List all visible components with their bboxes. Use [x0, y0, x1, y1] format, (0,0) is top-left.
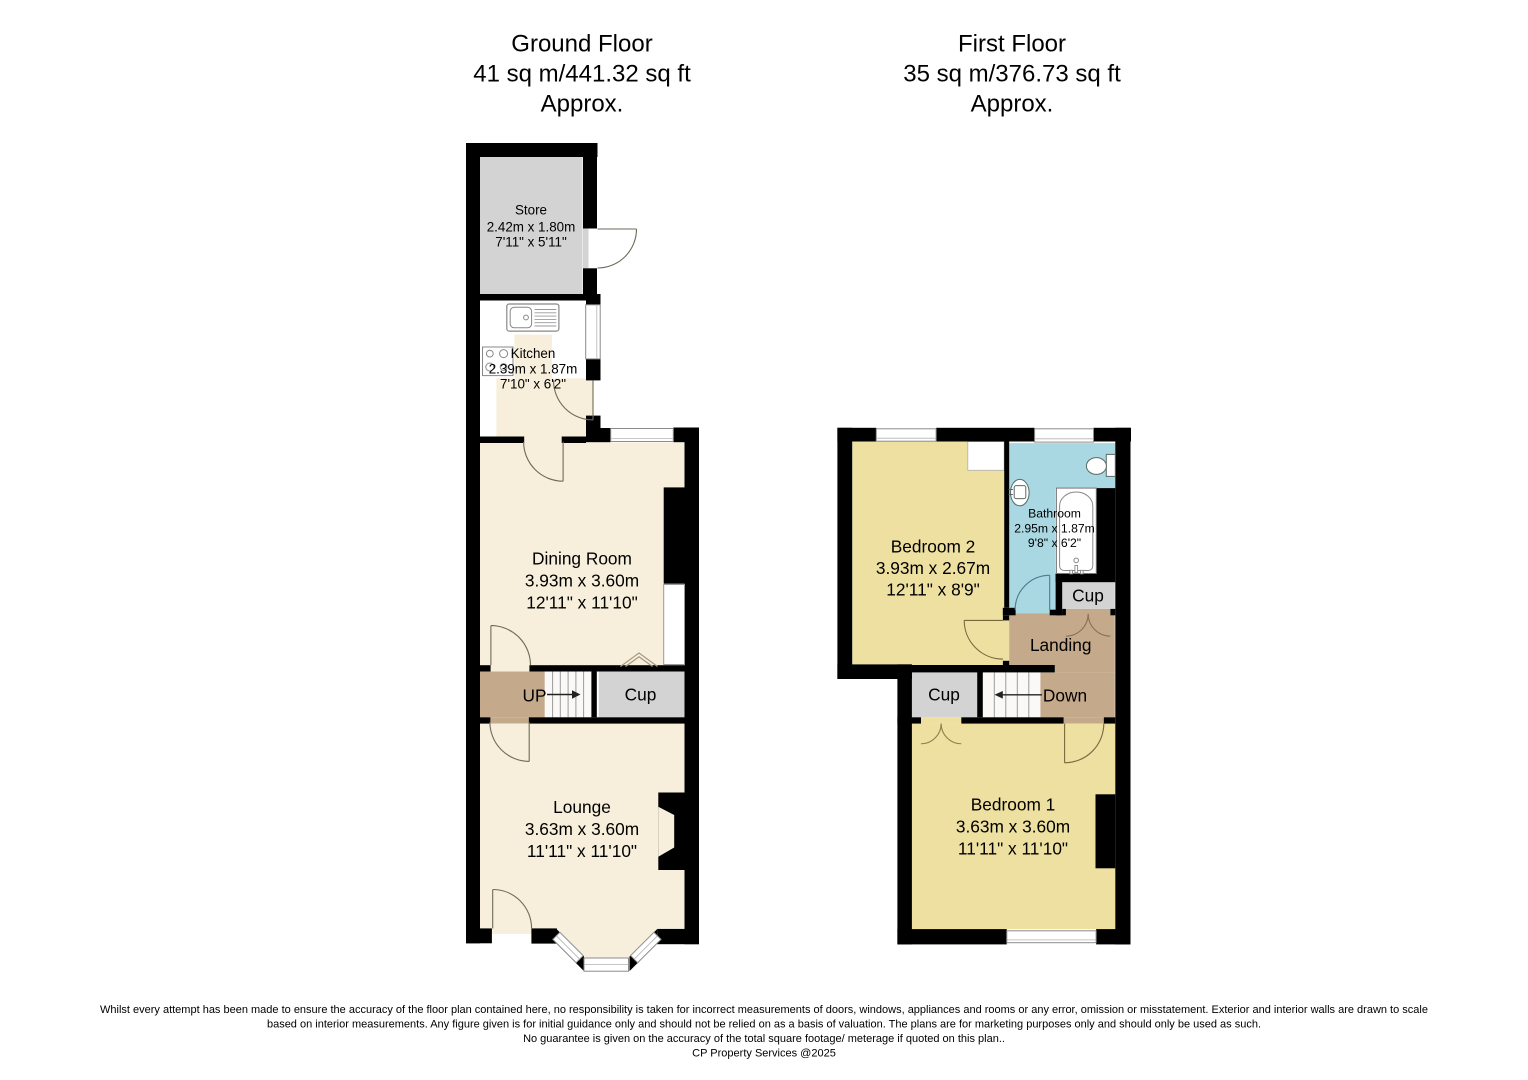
svg-text:Bedroom 2: Bedroom 2 [891, 537, 976, 557]
svg-text:Down: Down [1043, 686, 1087, 706]
svg-text:Cup: Cup [625, 684, 657, 704]
svg-text:12'11" x 8'9": 12'11" x 8'9" [886, 580, 980, 600]
svg-text:7'10" x 6'2": 7'10" x 6'2" [500, 377, 566, 392]
svg-text:Ground Floor: Ground Floor [511, 31, 652, 58]
svg-text:Approx.: Approx. [541, 91, 624, 118]
svg-text:3.63m x 3.60m: 3.63m x 3.60m [956, 817, 1070, 837]
svg-text:3.93m x 2.67m: 3.93m x 2.67m [876, 558, 990, 578]
svg-text:Approx.: Approx. [971, 91, 1054, 118]
svg-text:35 sq m/376.73 sq ft: 35 sq m/376.73 sq ft [903, 61, 1121, 88]
svg-text:3.63m x 3.60m: 3.63m x 3.60m [525, 819, 639, 839]
svg-text:Dining Room: Dining Room [532, 549, 632, 569]
svg-text:2.42m x 1.80m: 2.42m x 1.80m [487, 219, 576, 234]
svg-text:Landing: Landing [1030, 635, 1092, 655]
svg-text:11'11" x 11'10": 11'11" x 11'10" [527, 841, 637, 861]
svg-text:2.95m x 1.87m: 2.95m x 1.87m [1014, 521, 1095, 535]
svg-text:First Floor: First Floor [958, 31, 1066, 58]
svg-text:CP Property Services @2025: CP Property Services @2025 [692, 1048, 836, 1060]
svg-text:Lounge: Lounge [553, 797, 611, 817]
svg-text:7'11" x 5'11": 7'11" x 5'11" [495, 234, 567, 249]
svg-text:9'8" x 6'2": 9'8" x 6'2" [1028, 536, 1081, 550]
svg-text:Cup: Cup [1072, 586, 1104, 606]
svg-text:Bedroom 1: Bedroom 1 [971, 795, 1056, 815]
svg-text:UP: UP [522, 685, 546, 705]
svg-text:based on interior measurements: based on interior measurements. Any figu… [267, 1019, 1261, 1031]
svg-text:3.93m x 3.60m: 3.93m x 3.60m [525, 571, 639, 591]
svg-text:12'11" x 11'10": 12'11" x 11'10" [526, 593, 637, 613]
svg-text:41 sq m/441.32 sq ft: 41 sq m/441.32 sq ft [473, 61, 691, 88]
svg-text:Kitchen: Kitchen [511, 346, 556, 361]
svg-text:Cup: Cup [928, 684, 960, 704]
svg-text:2.39m x 1.87m: 2.39m x 1.87m [489, 361, 578, 376]
svg-text:Store: Store [515, 202, 547, 217]
svg-text:Whilst every attempt has been: Whilst every attempt has been made to en… [100, 1004, 1428, 1016]
svg-text:Bathroom: Bathroom [1028, 506, 1081, 520]
svg-text:No guarantee is given on the a: No guarantee is given on the accuracy of… [523, 1033, 1005, 1045]
svg-text:11'11" x 11'10": 11'11" x 11'10" [958, 839, 1068, 859]
